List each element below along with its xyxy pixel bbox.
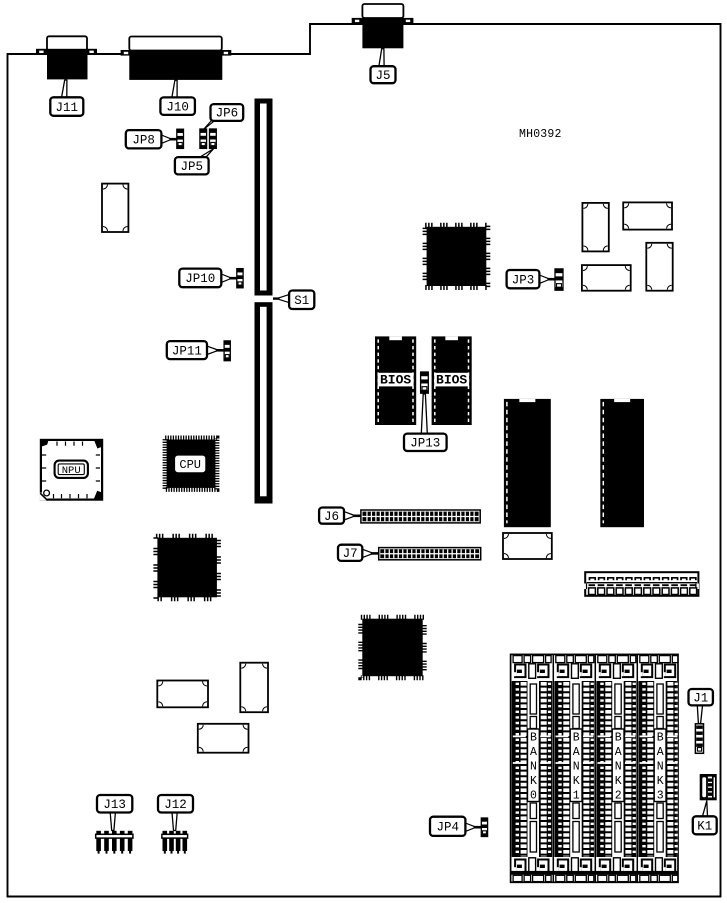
svg-text:N: N bbox=[573, 761, 580, 774]
svg-text:2: 2 bbox=[615, 790, 622, 803]
svg-text:K: K bbox=[615, 775, 622, 788]
svg-text:B: B bbox=[657, 732, 664, 745]
svg-text:A: A bbox=[657, 746, 664, 759]
svg-text:JP13: JP13 bbox=[410, 437, 440, 451]
svg-text:K: K bbox=[573, 775, 580, 788]
svg-text:B: B bbox=[573, 732, 580, 745]
svg-text:J10: J10 bbox=[166, 100, 189, 114]
svg-text:J1: J1 bbox=[693, 691, 708, 705]
svg-text:K: K bbox=[657, 775, 664, 788]
svg-text:N: N bbox=[657, 761, 664, 774]
svg-text:CPU: CPU bbox=[179, 458, 201, 472]
svg-text:B: B bbox=[615, 732, 622, 745]
svg-text:S1: S1 bbox=[294, 294, 309, 308]
svg-text:A: A bbox=[615, 746, 622, 759]
svg-text:J7: J7 bbox=[343, 547, 358, 561]
svg-text:A: A bbox=[573, 746, 580, 759]
svg-text:N: N bbox=[530, 761, 537, 774]
svg-text:JP4: JP4 bbox=[436, 821, 459, 835]
svg-text:B: B bbox=[530, 732, 537, 745]
svg-text:A: A bbox=[530, 746, 537, 759]
svg-text:J13: J13 bbox=[103, 798, 126, 812]
svg-text:JP3: JP3 bbox=[512, 273, 535, 287]
svg-text:J5: J5 bbox=[375, 69, 390, 83]
svg-text:J11: J11 bbox=[56, 101, 79, 115]
svg-text:1: 1 bbox=[573, 790, 580, 803]
svg-text:NPU: NPU bbox=[62, 465, 81, 477]
svg-text:JP11: JP11 bbox=[172, 344, 202, 358]
svg-text:JP10: JP10 bbox=[185, 272, 215, 286]
svg-text:JP6: JP6 bbox=[216, 107, 239, 121]
svg-text:K: K bbox=[530, 775, 537, 788]
svg-text:JP8: JP8 bbox=[132, 133, 155, 147]
svg-text:JP5: JP5 bbox=[180, 160, 203, 174]
svg-text:MH0392: MH0392 bbox=[519, 128, 562, 141]
svg-text:0: 0 bbox=[530, 790, 537, 803]
svg-text:J6: J6 bbox=[324, 510, 339, 524]
svg-text:BIOS: BIOS bbox=[436, 373, 467, 388]
svg-text:N: N bbox=[615, 761, 622, 774]
svg-text:J12: J12 bbox=[164, 798, 187, 812]
svg-text:BIOS: BIOS bbox=[380, 373, 411, 388]
svg-text:K1: K1 bbox=[697, 820, 712, 834]
svg-text:3: 3 bbox=[657, 790, 664, 803]
